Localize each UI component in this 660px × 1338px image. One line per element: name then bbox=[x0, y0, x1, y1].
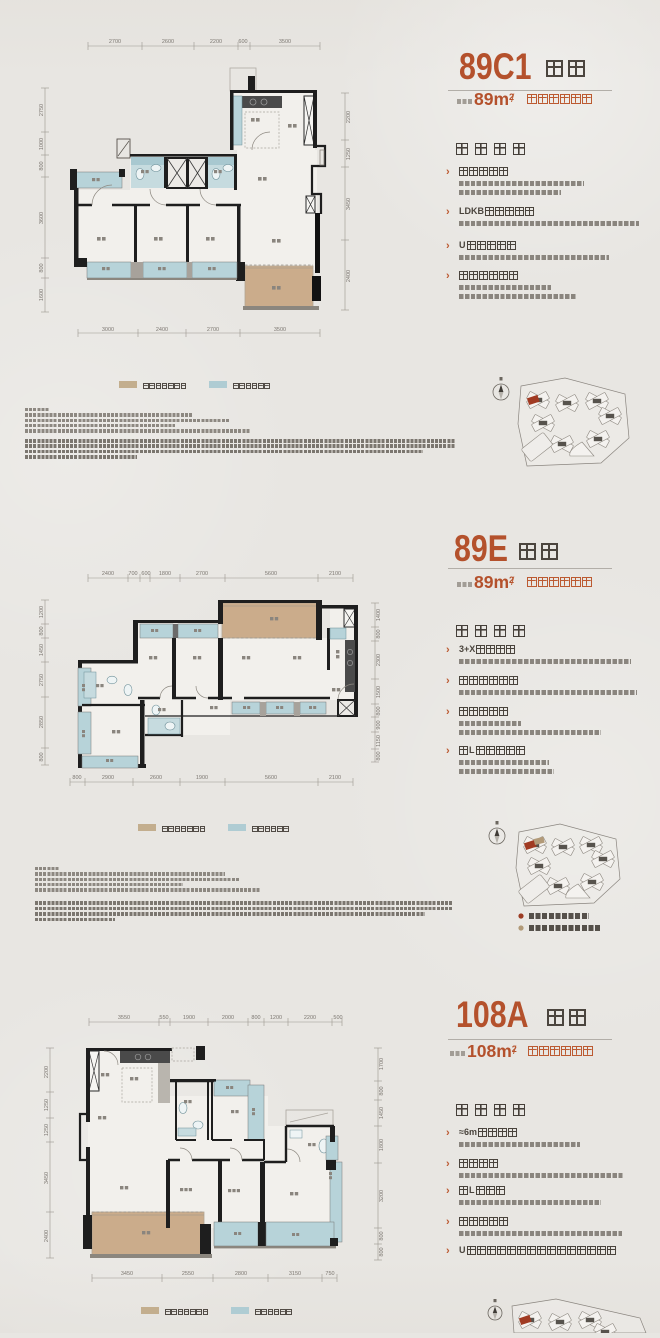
svg-text:2300: 2300 bbox=[376, 654, 382, 666]
svg-text:3000: 3000 bbox=[102, 327, 114, 333]
svg-text:2200: 2200 bbox=[304, 1015, 316, 1021]
svg-text:2750: 2750 bbox=[39, 104, 45, 116]
svg-text:800: 800 bbox=[39, 263, 45, 272]
svg-text:3550: 3550 bbox=[118, 1015, 130, 1021]
svg-text:2000: 2000 bbox=[222, 1015, 234, 1021]
svg-text:1150: 1150 bbox=[376, 735, 382, 747]
svg-text:900: 900 bbox=[376, 720, 382, 729]
svg-text:1500: 1500 bbox=[376, 686, 382, 698]
svg-text:1450: 1450 bbox=[39, 644, 45, 656]
svg-text:1000: 1000 bbox=[39, 138, 45, 150]
svg-text:2200: 2200 bbox=[346, 111, 352, 123]
svg-text:1250: 1250 bbox=[44, 1099, 50, 1111]
svg-text:1250: 1250 bbox=[44, 1124, 50, 1136]
svg-text:1250: 1250 bbox=[346, 148, 352, 160]
svg-text:2600: 2600 bbox=[150, 775, 162, 781]
svg-text:1600: 1600 bbox=[39, 289, 45, 301]
svg-text:700: 700 bbox=[128, 571, 137, 577]
svg-text:1450: 1450 bbox=[379, 1107, 385, 1119]
svg-text:2700: 2700 bbox=[109, 39, 121, 45]
svg-text:800: 800 bbox=[72, 775, 81, 781]
svg-text:2550: 2550 bbox=[182, 1271, 194, 1277]
svg-text:2700: 2700 bbox=[196, 571, 208, 577]
svg-text:2800: 2800 bbox=[235, 1271, 247, 1277]
svg-text:800: 800 bbox=[376, 706, 382, 715]
svg-text:1800: 1800 bbox=[159, 571, 171, 577]
svg-text:3500: 3500 bbox=[274, 327, 286, 333]
svg-text:2850: 2850 bbox=[39, 716, 45, 728]
svg-text:1800: 1800 bbox=[379, 1139, 385, 1151]
svg-text:3500: 3500 bbox=[279, 39, 291, 45]
svg-text:3200: 3200 bbox=[379, 1190, 385, 1202]
svg-text:500: 500 bbox=[333, 1015, 342, 1021]
svg-text:2400: 2400 bbox=[346, 270, 352, 282]
svg-text:2700: 2700 bbox=[207, 327, 219, 333]
svg-text:3450: 3450 bbox=[346, 198, 352, 210]
svg-text:2100: 2100 bbox=[329, 571, 341, 577]
svg-text:2750: 2750 bbox=[39, 674, 45, 686]
svg-text:800: 800 bbox=[379, 1231, 385, 1240]
svg-text:2400: 2400 bbox=[156, 327, 168, 333]
svg-text:600: 600 bbox=[141, 571, 150, 577]
svg-text:800: 800 bbox=[39, 626, 45, 635]
svg-text:1700: 1700 bbox=[379, 1058, 385, 1070]
svg-text:3450: 3450 bbox=[44, 1172, 50, 1184]
svg-text:1200: 1200 bbox=[270, 1015, 282, 1021]
svg-text:1200: 1200 bbox=[39, 606, 45, 618]
svg-text:1400: 1400 bbox=[376, 609, 382, 621]
svg-text:2200: 2200 bbox=[44, 1066, 50, 1078]
svg-text:750: 750 bbox=[325, 1271, 334, 1277]
svg-text:2400: 2400 bbox=[44, 1230, 50, 1242]
svg-text:800: 800 bbox=[376, 629, 382, 638]
svg-text:1900: 1900 bbox=[183, 1015, 195, 1021]
svg-text:550: 550 bbox=[159, 1015, 168, 1021]
svg-text:1900: 1900 bbox=[196, 775, 208, 781]
svg-text:2400: 2400 bbox=[102, 571, 114, 577]
svg-text:5600: 5600 bbox=[265, 775, 277, 781]
svg-text:800: 800 bbox=[251, 1015, 260, 1021]
svg-text:800: 800 bbox=[379, 1086, 385, 1095]
svg-text:3600: 3600 bbox=[39, 212, 45, 224]
svg-text:800: 800 bbox=[39, 752, 45, 761]
svg-text:3150: 3150 bbox=[289, 1271, 301, 1277]
svg-text:800: 800 bbox=[379, 1247, 385, 1256]
svg-text:2900: 2900 bbox=[102, 775, 114, 781]
svg-text:600: 600 bbox=[238, 39, 247, 45]
svg-text:2100: 2100 bbox=[329, 775, 341, 781]
svg-text:2200: 2200 bbox=[210, 39, 222, 45]
svg-text:2600: 2600 bbox=[162, 39, 174, 45]
svg-text:5600: 5600 bbox=[265, 571, 277, 577]
svg-text:800: 800 bbox=[39, 161, 45, 170]
svg-text:800: 800 bbox=[376, 751, 382, 760]
svg-text:3450: 3450 bbox=[121, 1271, 133, 1277]
